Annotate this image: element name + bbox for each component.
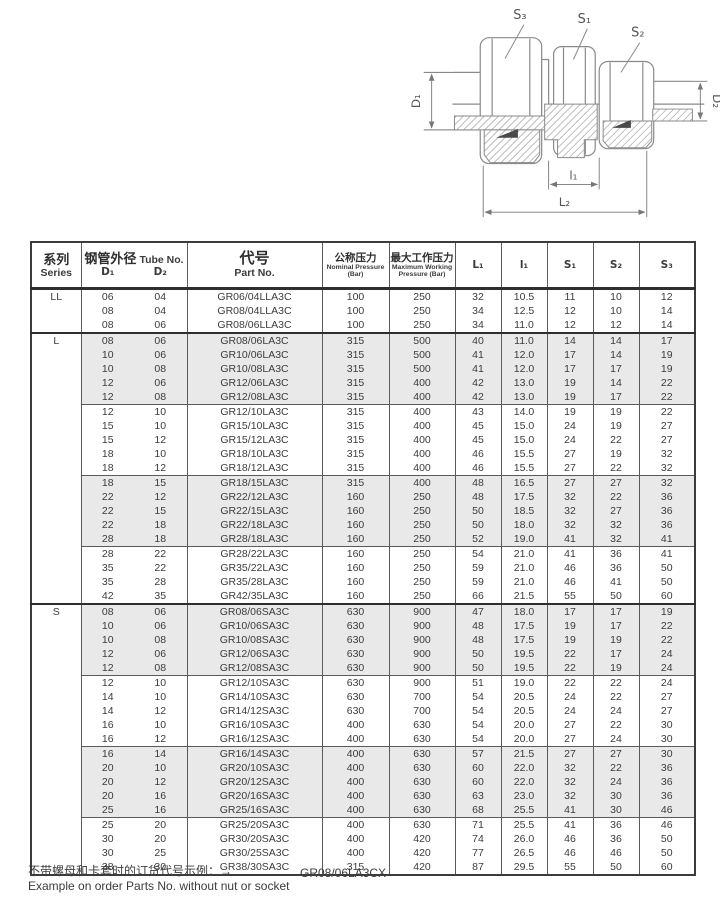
header-tube-od: 钢管外径 Tube No. D₁ D₂ — [81, 242, 187, 289]
table-row: 3025GR30/25SA3C4004207726.5464650 — [31, 846, 695, 860]
table-row: 1208GR12/08LA3C3154004213.0191722 — [31, 390, 695, 405]
cell-d2: 35 — [134, 589, 187, 604]
cell-max-pressure: 500 — [389, 362, 455, 376]
table-row: 2822GR28/22LA3C1602505421.0413641 — [31, 547, 695, 562]
cell-l1: 50 — [455, 518, 501, 532]
cell-s3: 36 — [639, 775, 695, 789]
cell-s3: 36 — [639, 789, 695, 803]
header-nominal-pressure: 公称压力 Nominal Pressure (Bar) — [322, 242, 389, 289]
cell-max-pressure: 630 — [389, 775, 455, 789]
cell-l1: 41 — [455, 348, 501, 362]
table-row: 1412GR14/12SA3C6307005420.5242427 — [31, 704, 695, 718]
cell-max-pressure: 630 — [389, 747, 455, 762]
cell-s2: 50 — [593, 860, 639, 875]
label-d2: D₂ — [710, 94, 720, 108]
cell-d2: 12 — [134, 433, 187, 447]
cell-s2: 24 — [593, 732, 639, 747]
cell-s1: 24 — [547, 704, 593, 718]
cell-s2: 19 — [593, 661, 639, 676]
cell-s3: 22 — [639, 390, 695, 405]
cell-part-no: GR16/10SA3C — [187, 718, 322, 732]
cell-d2: 10 — [134, 761, 187, 775]
cell-max-pressure: 700 — [389, 704, 455, 718]
cell-s2: 22 — [593, 461, 639, 476]
cell-d1: 20 — [81, 789, 134, 803]
cell-s3: 50 — [639, 561, 695, 575]
cell-i1: 14.0 — [501, 405, 547, 420]
cell-s3: 12 — [639, 289, 695, 305]
cell-i1: 18.0 — [501, 518, 547, 532]
cell-i1: 23.0 — [501, 789, 547, 803]
cell-part-no: GR20/16SA3C — [187, 789, 322, 803]
header-series-en: Series — [32, 267, 81, 279]
spec-table: 系列 Series 钢管外径 Tube No. D₁ D₂ 代号 Part No… — [30, 241, 696, 876]
cell-max-pressure: 900 — [389, 676, 455, 691]
label-l2: L₂ — [559, 195, 571, 209]
header-tube-zh: 钢管外径 — [84, 251, 136, 266]
cell-d2: 22 — [134, 547, 187, 562]
cell-l1: 41 — [455, 362, 501, 376]
cell-l1: 63 — [455, 789, 501, 803]
cell-d1: 12 — [81, 376, 134, 390]
cell-s1: 41 — [547, 532, 593, 547]
cell-nominal-pressure: 315 — [322, 376, 389, 390]
table-row: 2016GR20/16SA3C4006306323.0323036 — [31, 789, 695, 803]
cell-d2: 04 — [134, 289, 187, 305]
cell-nominal-pressure: 315 — [322, 362, 389, 376]
cell-nominal-pressure: 315 — [322, 390, 389, 405]
cell-s1: 12 — [547, 318, 593, 333]
cell-nominal-pressure: 630 — [322, 661, 389, 676]
cell-s3: 46 — [639, 818, 695, 833]
cell-s2: 32 — [593, 532, 639, 547]
cell-s1: 17 — [547, 348, 593, 362]
header-s3: S₃ — [639, 242, 695, 289]
cell-d1: 18 — [81, 447, 134, 461]
cell-d2: 18 — [134, 518, 187, 532]
cell-max-pressure: 250 — [389, 547, 455, 562]
cell-s3: 36 — [639, 490, 695, 504]
cell-max-pressure: 250 — [389, 589, 455, 604]
cell-part-no: GR20/12SA3C — [187, 775, 322, 789]
cell-d1: 15 — [81, 433, 134, 447]
cell-d2: 16 — [134, 803, 187, 818]
cell-d2: 28 — [134, 575, 187, 589]
table-header-row: 系列 Series 钢管外径 Tube No. D₁ D₂ 代号 Part No… — [31, 242, 695, 289]
cell-d2: 15 — [134, 476, 187, 491]
cell-part-no: GR12/10LA3C — [187, 405, 322, 420]
cell-l1: 71 — [455, 818, 501, 833]
spec-table-body: LL0604GR06/04LLA3C1002503210.51110120804… — [31, 289, 695, 876]
cell-s2: 17 — [593, 619, 639, 633]
header-d2: D₂ — [134, 266, 187, 279]
cell-d1: 28 — [81, 547, 134, 562]
cell-s2: 17 — [593, 390, 639, 405]
cell-part-no: GR12/08SA3C — [187, 661, 322, 676]
header-series: 系列 Series — [31, 242, 81, 289]
cell-part-no: GR30/20SA3C — [187, 832, 322, 846]
cell-d1: 15 — [81, 419, 134, 433]
cell-l1: 45 — [455, 419, 501, 433]
cell-nominal-pressure: 160 — [322, 589, 389, 604]
cell-s3: 32 — [639, 476, 695, 491]
cell-d1: 22 — [81, 504, 134, 518]
cell-max-pressure: 900 — [389, 647, 455, 661]
cell-nominal-pressure: 630 — [322, 604, 389, 619]
cell-s3: 19 — [639, 604, 695, 619]
cell-max-pressure: 630 — [389, 803, 455, 818]
cell-part-no: GR30/25SA3C — [187, 846, 322, 860]
label-s2: S₂ — [631, 26, 644, 41]
cell-s2: 17 — [593, 647, 639, 661]
cell-nominal-pressure: 160 — [322, 547, 389, 562]
cell-i1: 18.5 — [501, 504, 547, 518]
cell-d1: 20 — [81, 761, 134, 775]
cell-nominal-pressure: 400 — [322, 761, 389, 775]
table-row: L0806GR08/06LA3C3155004011.0141417 — [31, 333, 695, 348]
cell-nominal-pressure: 160 — [322, 490, 389, 504]
cell-s3: 50 — [639, 575, 695, 589]
cell-s2: 14 — [593, 333, 639, 348]
cell-i1: 15.0 — [501, 419, 547, 433]
cell-d2: 12 — [134, 775, 187, 789]
header-l1: L₁ — [455, 242, 501, 289]
cell-nominal-pressure: 400 — [322, 747, 389, 762]
cell-s1: 19 — [547, 376, 593, 390]
cell-s3: 27 — [639, 704, 695, 718]
cell-d2: 12 — [134, 732, 187, 747]
cell-s3: 27 — [639, 433, 695, 447]
cell-s3: 22 — [639, 633, 695, 647]
cell-s1: 19 — [547, 390, 593, 405]
cell-s2: 22 — [593, 761, 639, 775]
cell-s1: 17 — [547, 362, 593, 376]
header-s2: S₂ — [593, 242, 639, 289]
cell-i1: 22.0 — [501, 761, 547, 775]
cell-l1: 87 — [455, 860, 501, 875]
cell-nominal-pressure: 400 — [322, 818, 389, 833]
cell-d1: 10 — [81, 633, 134, 647]
cell-s3: 41 — [639, 547, 695, 562]
cell-part-no: GR10/08SA3C — [187, 633, 322, 647]
table-row: 3020GR30/20SA3C4004207426.0463650 — [31, 832, 695, 846]
cell-d1: 35 — [81, 561, 134, 575]
header-d1: D₁ — [82, 266, 135, 279]
cell-max-pressure: 400 — [389, 433, 455, 447]
table-row: S0806GR08/06SA3C6309004718.0171719 — [31, 604, 695, 619]
cell-l1: 60 — [455, 761, 501, 775]
cell-s1: 41 — [547, 547, 593, 562]
cell-s2: 27 — [593, 747, 639, 762]
cell-s1: 46 — [547, 846, 593, 860]
cell-s3: 24 — [639, 661, 695, 676]
cell-i1: 20.5 — [501, 704, 547, 718]
cell-d2: 08 — [134, 633, 187, 647]
cell-d2: 12 — [134, 461, 187, 476]
table-row: 1510GR15/10LA3C3154004515.0241927 — [31, 419, 695, 433]
cell-nominal-pressure: 315 — [322, 447, 389, 461]
cell-s2: 30 — [593, 803, 639, 818]
cell-nominal-pressure: 315 — [322, 348, 389, 362]
cell-l1: 45 — [455, 433, 501, 447]
cell-l1: 54 — [455, 718, 501, 732]
cell-s2: 27 — [593, 476, 639, 491]
cell-d2: 06 — [134, 318, 187, 333]
table-row: 2218GR22/18LA3C1602505018.0323236 — [31, 518, 695, 532]
cell-max-pressure: 420 — [389, 860, 455, 875]
cell-s2: 30 — [593, 789, 639, 803]
cell-i1: 13.0 — [501, 376, 547, 390]
cell-s2: 22 — [593, 490, 639, 504]
table-row: 1812GR18/12LA3C3154004615.5272232 — [31, 461, 695, 476]
cell-i1: 12.0 — [501, 348, 547, 362]
cell-s1: 11 — [547, 289, 593, 305]
cell-d2: 22 — [134, 561, 187, 575]
cell-s2: 12 — [593, 318, 639, 333]
cell-s1: 46 — [547, 575, 593, 589]
cell-l1: 59 — [455, 561, 501, 575]
table-row: 2215GR22/15LA3C1602505018.5322736 — [31, 504, 695, 518]
cell-i1: 22.0 — [501, 775, 547, 789]
cell-s3: 46 — [639, 803, 695, 818]
cell-l1: 50 — [455, 647, 501, 661]
cell-max-pressure: 250 — [389, 504, 455, 518]
cell-part-no: GR08/06LLA3C — [187, 318, 322, 333]
cell-s1: 46 — [547, 832, 593, 846]
cell-l1: 43 — [455, 405, 501, 420]
cell-d1: 12 — [81, 390, 134, 405]
cell-max-pressure: 700 — [389, 690, 455, 704]
cell-s2: 14 — [593, 348, 639, 362]
cell-s1: 41 — [547, 818, 593, 833]
cell-part-no: GR10/06LA3C — [187, 348, 322, 362]
series-label: L — [31, 333, 81, 604]
cell-d1: 08 — [81, 318, 134, 333]
cell-nominal-pressure: 160 — [322, 518, 389, 532]
catalog-page: S₃ S₁ S₂ D₁ D₂ — [0, 0, 723, 907]
cell-l1: 59 — [455, 575, 501, 589]
cell-s1: 32 — [547, 789, 593, 803]
cell-i1: 26.0 — [501, 832, 547, 846]
cell-s1: 32 — [547, 775, 593, 789]
header-nominal-zh: 公称压力 — [323, 252, 389, 264]
cell-s1: 24 — [547, 419, 593, 433]
cell-d1: 22 — [81, 518, 134, 532]
cell-max-pressure: 250 — [389, 304, 455, 318]
cell-s3: 60 — [639, 589, 695, 604]
cell-nominal-pressure: 160 — [322, 561, 389, 575]
cell-part-no: GR25/16SA3C — [187, 803, 322, 818]
cell-l1: 34 — [455, 304, 501, 318]
cell-s1: 19 — [547, 619, 593, 633]
cell-d1: 35 — [81, 575, 134, 589]
cell-part-no: GR16/12SA3C — [187, 732, 322, 747]
order-note-en: Example on order Parts No. without nut o… — [28, 879, 289, 894]
cell-nominal-pressure: 315 — [322, 333, 389, 348]
order-note: 不带螺母和卡套时的订货代号示例：→ Example on order Parts… — [28, 864, 289, 894]
cell-i1: 21.5 — [501, 747, 547, 762]
cell-s1: 27 — [547, 476, 593, 491]
cell-part-no: GR18/10LA3C — [187, 447, 322, 461]
cell-i1: 12.5 — [501, 304, 547, 318]
cell-nominal-pressure: 630 — [322, 619, 389, 633]
cell-i1: 16.5 — [501, 476, 547, 491]
header-series-zh: 系列 — [32, 252, 81, 267]
cell-s3: 19 — [639, 348, 695, 362]
cell-s1: 41 — [547, 803, 593, 818]
cell-l1: 50 — [455, 504, 501, 518]
cell-s1: 24 — [547, 433, 593, 447]
cell-s1: 14 — [547, 333, 593, 348]
table-row: 3522GR35/22LA3C1602505921.0463650 — [31, 561, 695, 575]
label-s1: S₁ — [578, 12, 591, 27]
cell-d1: 25 — [81, 803, 134, 818]
cell-l1: 74 — [455, 832, 501, 846]
cell-nominal-pressure: 400 — [322, 718, 389, 732]
cell-i1: 21.0 — [501, 547, 547, 562]
cell-i1: 25.5 — [501, 803, 547, 818]
cell-s3: 17 — [639, 333, 695, 348]
cell-s2: 19 — [593, 447, 639, 461]
cell-s1: 22 — [547, 661, 593, 676]
cell-s1: 32 — [547, 518, 593, 532]
cell-s2: 19 — [593, 419, 639, 433]
cell-d2: 12 — [134, 704, 187, 718]
cell-d2: 12 — [134, 490, 187, 504]
cell-part-no: GR08/06SA3C — [187, 604, 322, 619]
table-row: 2818GR28/18LA3C1602505219.0413241 — [31, 532, 695, 547]
cell-l1: 46 — [455, 461, 501, 476]
cell-part-no: GR18/12LA3C — [187, 461, 322, 476]
cell-nominal-pressure: 400 — [322, 803, 389, 818]
cell-max-pressure: 400 — [389, 461, 455, 476]
cell-d2: 10 — [134, 690, 187, 704]
cell-nominal-pressure: 100 — [322, 304, 389, 318]
header-nominal-en: Nominal Pressure (Bar) — [323, 264, 389, 279]
cell-d1: 06 — [81, 289, 134, 305]
cell-part-no: GR10/08LA3C — [187, 362, 322, 376]
table-row: 1208GR12/08SA3C6309005019.5221924 — [31, 661, 695, 676]
cell-s2: 36 — [593, 561, 639, 575]
cell-d2: 06 — [134, 333, 187, 348]
cell-part-no: GR10/06SA3C — [187, 619, 322, 633]
cell-s3: 36 — [639, 504, 695, 518]
cell-max-pressure: 400 — [389, 476, 455, 491]
cell-l1: 42 — [455, 376, 501, 390]
cell-l1: 54 — [455, 732, 501, 747]
cell-s3: 22 — [639, 376, 695, 390]
cell-nominal-pressure: 160 — [322, 504, 389, 518]
cell-part-no: GR06/04LLA3C — [187, 289, 322, 305]
cell-d1: 20 — [81, 775, 134, 789]
table-row: 2010GR20/10SA3C4006306022.0322236 — [31, 761, 695, 775]
cell-d1: 30 — [81, 832, 134, 846]
table-row: 1614GR16/14SA3C4006305721.5272730 — [31, 747, 695, 762]
cell-i1: 19.0 — [501, 532, 547, 547]
cell-s1: 12 — [547, 304, 593, 318]
cell-s1: 22 — [547, 676, 593, 691]
cell-part-no: GR22/12LA3C — [187, 490, 322, 504]
series-label: S — [31, 604, 81, 875]
cell-l1: 54 — [455, 547, 501, 562]
cell-d1: 42 — [81, 589, 134, 604]
table-row: 1006GR10/06LA3C3155004112.0171419 — [31, 348, 695, 362]
cell-max-pressure: 900 — [389, 633, 455, 647]
cell-max-pressure: 250 — [389, 518, 455, 532]
cell-s2: 10 — [593, 289, 639, 305]
cell-nominal-pressure: 315 — [322, 419, 389, 433]
cell-nominal-pressure: 630 — [322, 704, 389, 718]
cell-i1: 29.5 — [501, 860, 547, 875]
cell-d1: 14 — [81, 704, 134, 718]
cell-d1: 08 — [81, 604, 134, 619]
header-max-zh: 最大工作压力 — [390, 252, 455, 264]
cell-d2: 16 — [134, 789, 187, 803]
cell-max-pressure: 250 — [389, 318, 455, 333]
fitting-cross-section-drawing: S₃ S₁ S₂ D₁ D₂ — [408, 2, 720, 230]
cell-part-no: GR22/15LA3C — [187, 504, 322, 518]
cell-max-pressure: 500 — [389, 333, 455, 348]
cell-l1: 42 — [455, 390, 501, 405]
cell-d1: 16 — [81, 732, 134, 747]
cell-part-no: GR12/06LA3C — [187, 376, 322, 390]
cell-s3: 30 — [639, 718, 695, 732]
cell-s1: 32 — [547, 490, 593, 504]
cell-d1: 16 — [81, 747, 134, 762]
cell-s3: 22 — [639, 619, 695, 633]
cell-d1: 12 — [81, 405, 134, 420]
cell-s3: 27 — [639, 690, 695, 704]
cell-s3: 50 — [639, 846, 695, 860]
cell-nominal-pressure: 630 — [322, 633, 389, 647]
cell-max-pressure: 420 — [389, 846, 455, 860]
cell-l1: 32 — [455, 289, 501, 305]
header-part-zh: 代号 — [188, 251, 322, 267]
cell-i1: 26.5 — [501, 846, 547, 860]
cell-i1: 10.5 — [501, 289, 547, 305]
cell-l1: 50 — [455, 661, 501, 676]
cell-s3: 24 — [639, 647, 695, 661]
cell-s2: 24 — [593, 704, 639, 718]
cell-l1: 48 — [455, 490, 501, 504]
cell-i1: 19.5 — [501, 647, 547, 661]
cell-s1: 24 — [547, 690, 593, 704]
cell-part-no: GR18/15LA3C — [187, 476, 322, 491]
cell-d1: 14 — [81, 690, 134, 704]
cell-max-pressure: 630 — [389, 718, 455, 732]
cell-s3: 32 — [639, 461, 695, 476]
cell-l1: 54 — [455, 690, 501, 704]
cell-s1: 27 — [547, 447, 593, 461]
cell-s2: 50 — [593, 589, 639, 604]
cell-part-no: GR14/12SA3C — [187, 704, 322, 718]
cell-nominal-pressure: 100 — [322, 318, 389, 333]
cell-l1: 34 — [455, 318, 501, 333]
table-row: 2520GR25/20SA3C4006307125.5413646 — [31, 818, 695, 833]
cell-s3: 27 — [639, 419, 695, 433]
cell-max-pressure: 630 — [389, 789, 455, 803]
cell-d1: 10 — [81, 362, 134, 376]
cell-s1: 32 — [547, 504, 593, 518]
table-row: 1810GR18/10LA3C3154004615.5271932 — [31, 447, 695, 461]
series-label: LL — [31, 289, 81, 334]
table-row: 0806GR08/06LLA3C1002503411.0121214 — [31, 318, 695, 333]
cell-part-no: GR16/14SA3C — [187, 747, 322, 762]
order-note-zh: 不带螺母和卡套时的订货代号示例：→ — [28, 864, 289, 879]
cell-s3: 24 — [639, 676, 695, 691]
cell-i1: 12.0 — [501, 362, 547, 376]
cell-l1: 68 — [455, 803, 501, 818]
